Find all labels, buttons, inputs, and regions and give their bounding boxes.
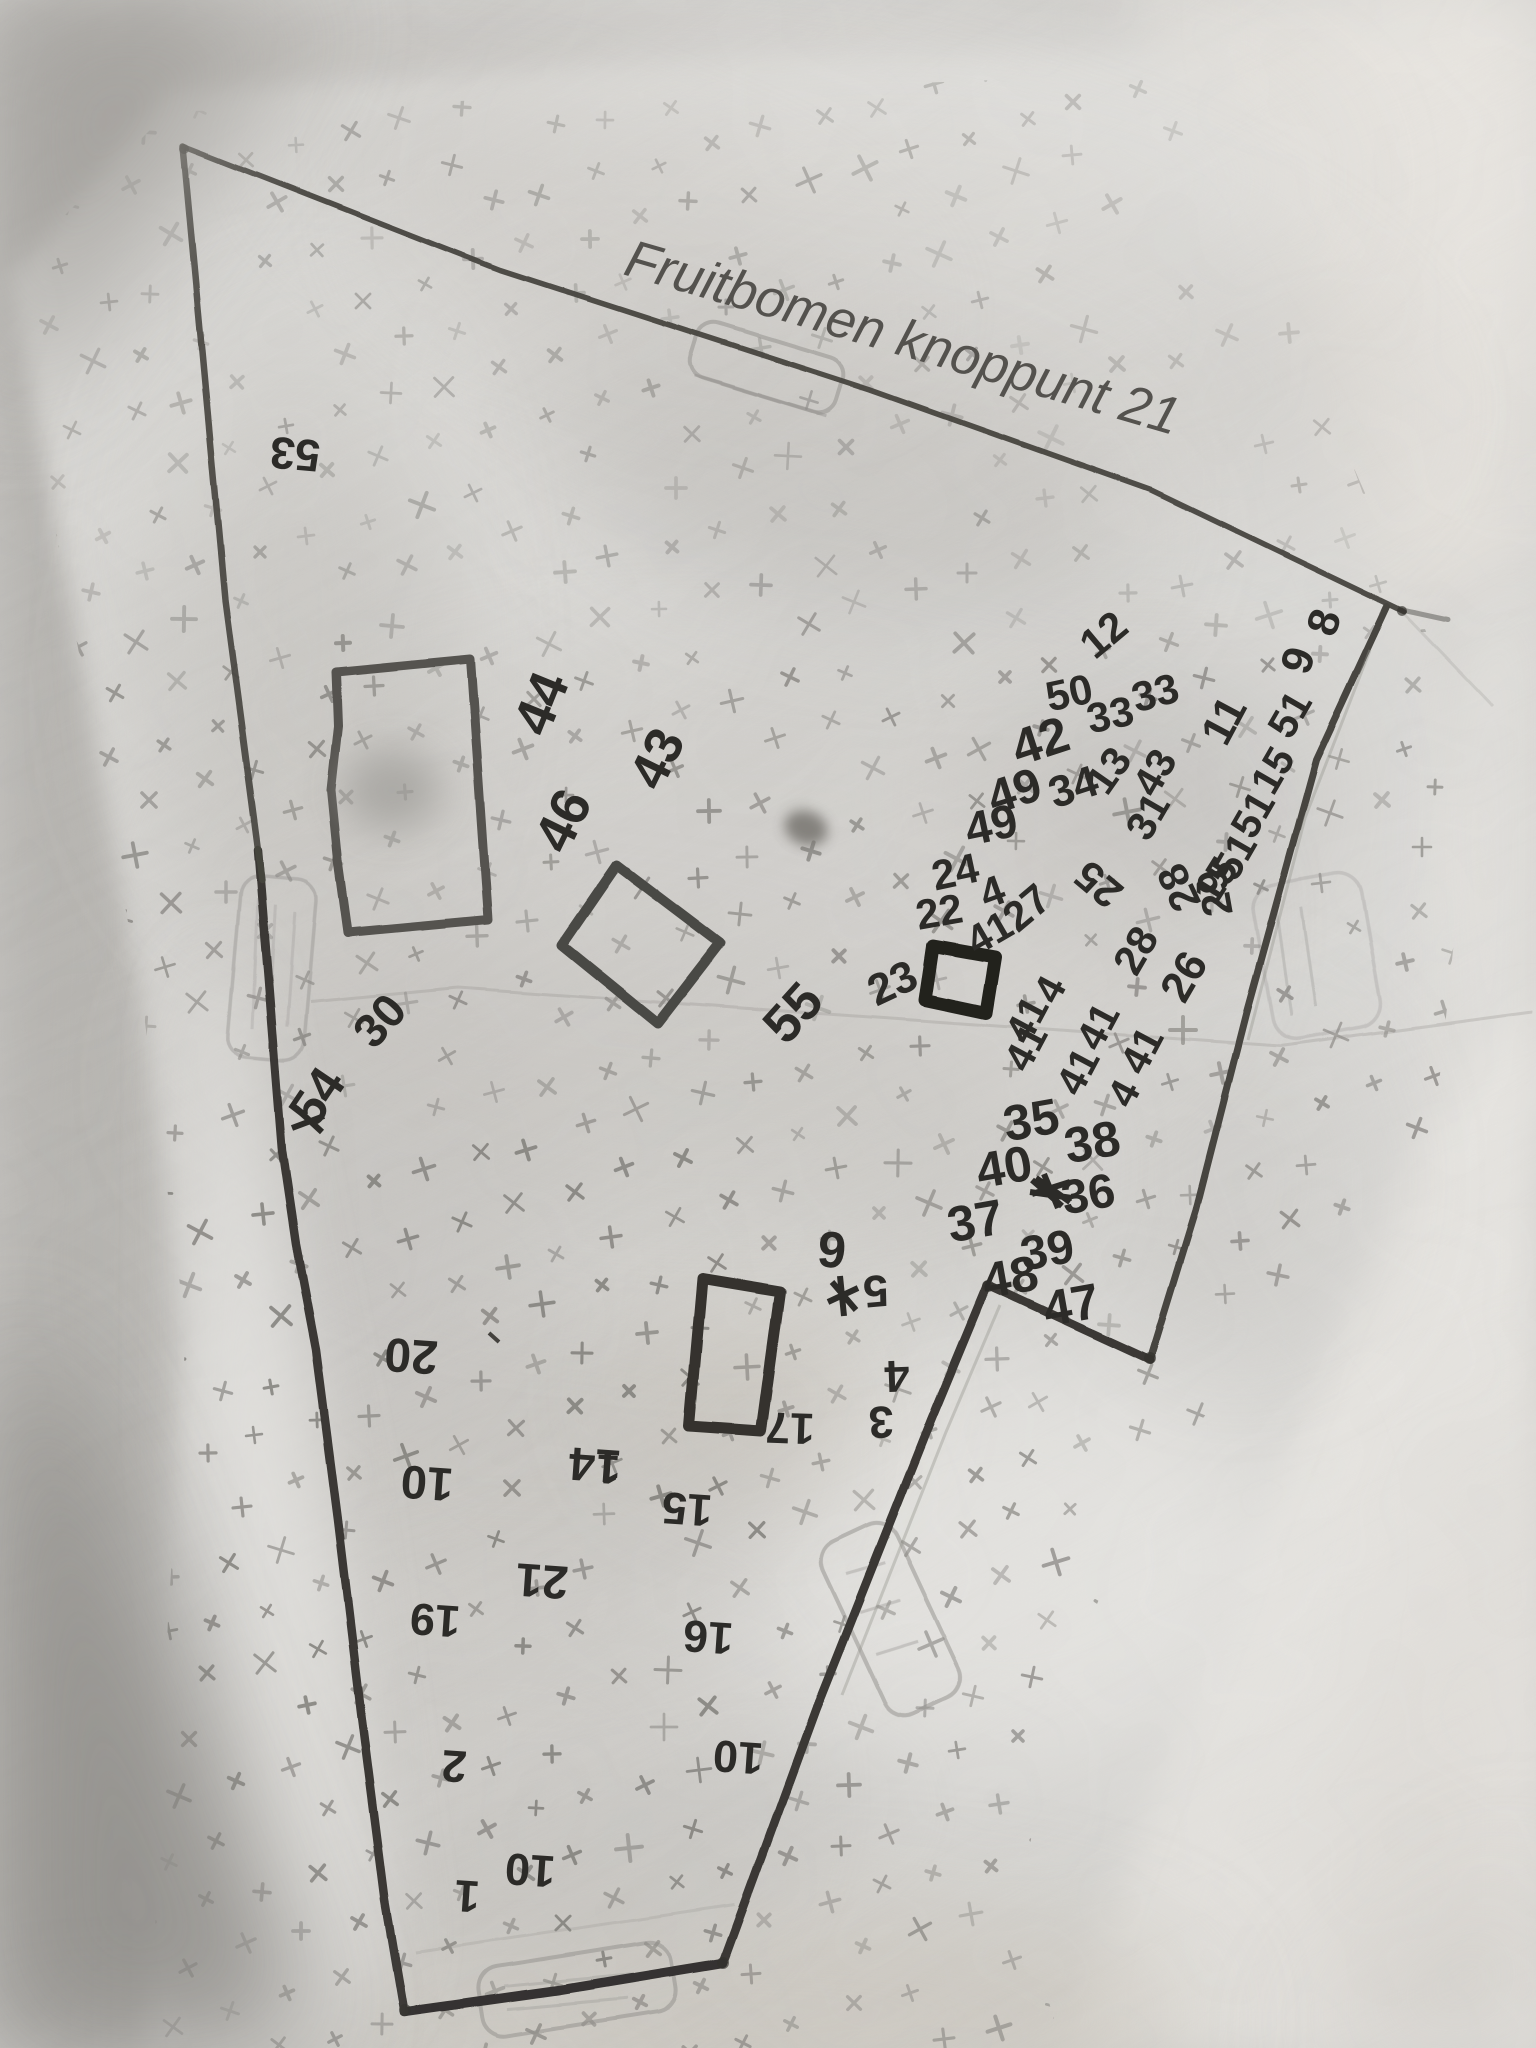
svg-text:15: 15 [660, 1482, 713, 1536]
svg-text:47: 47 [1039, 1273, 1104, 1338]
svg-text:10: 10 [711, 1730, 764, 1784]
svg-text:21: 21 [514, 1553, 570, 1610]
svg-text:3: 3 [868, 1396, 895, 1448]
svg-text:10: 10 [399, 1455, 455, 1512]
svg-text:20: 20 [383, 1327, 440, 1384]
svg-text:1: 1 [595, 1446, 621, 1493]
svg-text:33: 33 [1082, 687, 1137, 743]
svg-text:5: 5 [861, 1265, 890, 1318]
svg-text:48: 48 [978, 1245, 1043, 1310]
svg-text:22: 22 [912, 884, 966, 938]
svg-text:53: 53 [268, 427, 322, 482]
svg-text:10: 10 [503, 1843, 556, 1897]
svg-text:40: 40 [972, 1135, 1037, 1200]
svg-text:2: 2 [440, 1740, 469, 1793]
svg-text:29: 29 [1187, 866, 1241, 920]
svg-text:9: 9 [815, 1220, 848, 1279]
svg-text:19: 19 [408, 1593, 461, 1647]
svg-text:1: 1 [453, 1870, 482, 1923]
svg-text:17: 17 [765, 1402, 816, 1453]
svg-text:38: 38 [1060, 1110, 1125, 1175]
svg-text:37: 37 [943, 1189, 1008, 1254]
svg-text:16: 16 [681, 1610, 734, 1664]
svg-text:4: 4 [884, 1350, 911, 1402]
